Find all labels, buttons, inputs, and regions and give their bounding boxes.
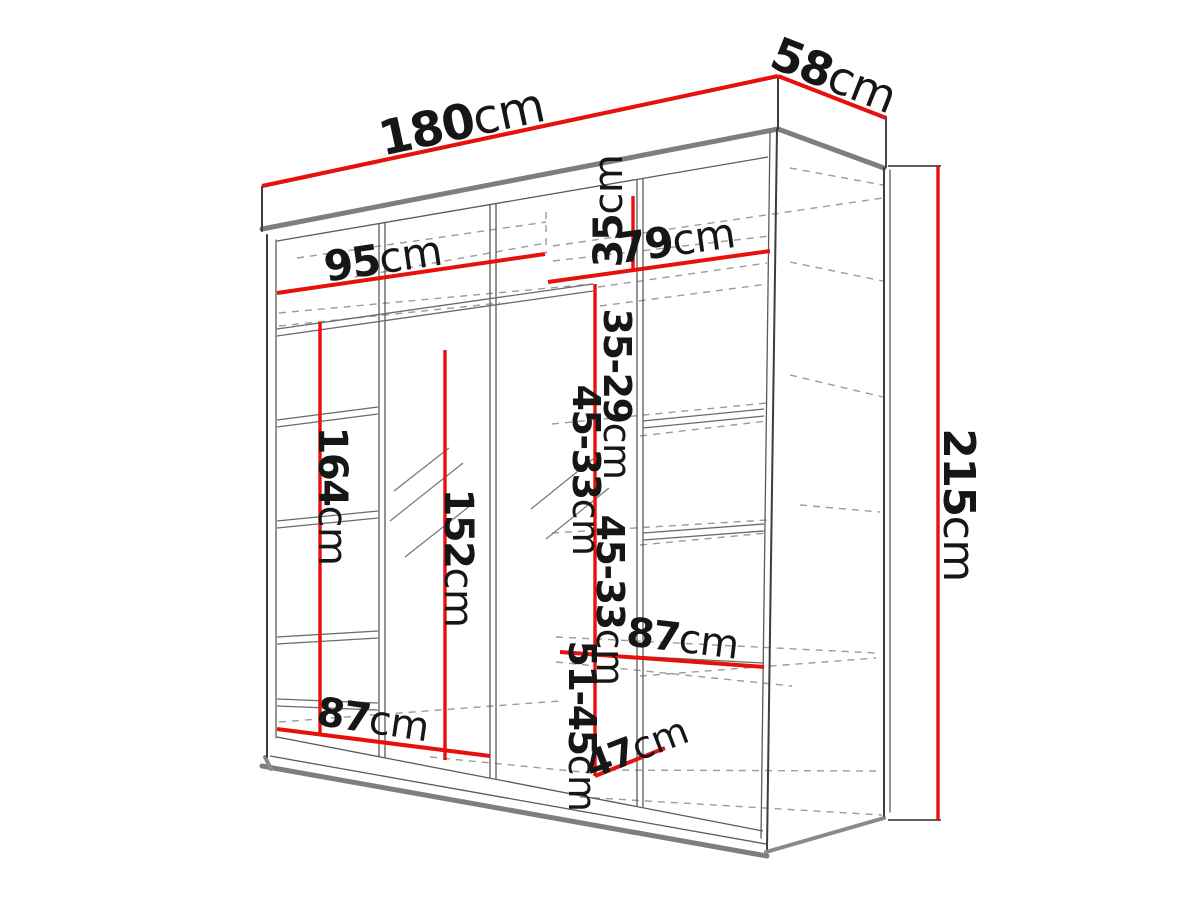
wardrobe-dimension-diagram: 180cm 58cm 215cm 95cm 79cm 35cm 35-29cm … bbox=[0, 0, 1200, 899]
label-total-height: 215cm bbox=[933, 428, 984, 581]
door-divider-right bbox=[637, 178, 643, 807]
crown-side-edge bbox=[778, 129, 884, 168]
label-hanging-height: 164cm bbox=[309, 427, 355, 566]
base-front-edge bbox=[262, 766, 767, 856]
label-total-width: 180cm bbox=[374, 77, 550, 167]
label-mirror-height: 152cm bbox=[435, 489, 481, 628]
base-side-edge bbox=[766, 818, 884, 852]
plinth-top-edge bbox=[270, 756, 766, 844]
dimension-ticks bbox=[886, 118, 941, 820]
door-divider-middle bbox=[490, 204, 496, 779]
label-top-shelf-gap: 35cm bbox=[586, 155, 632, 268]
dimension-labels: 180cm 58cm 215cm 95cm 79cm 35cm 35-29cm … bbox=[309, 26, 984, 811]
diagram-canvas: 180cm 58cm 215cm 95cm 79cm 35cm 35-29cm … bbox=[0, 0, 1200, 899]
label-total-depth: 58cm bbox=[763, 26, 904, 124]
label-left-section-width: 95cm bbox=[321, 226, 445, 292]
label-bottom-shelf-width: 87cm bbox=[314, 689, 432, 751]
